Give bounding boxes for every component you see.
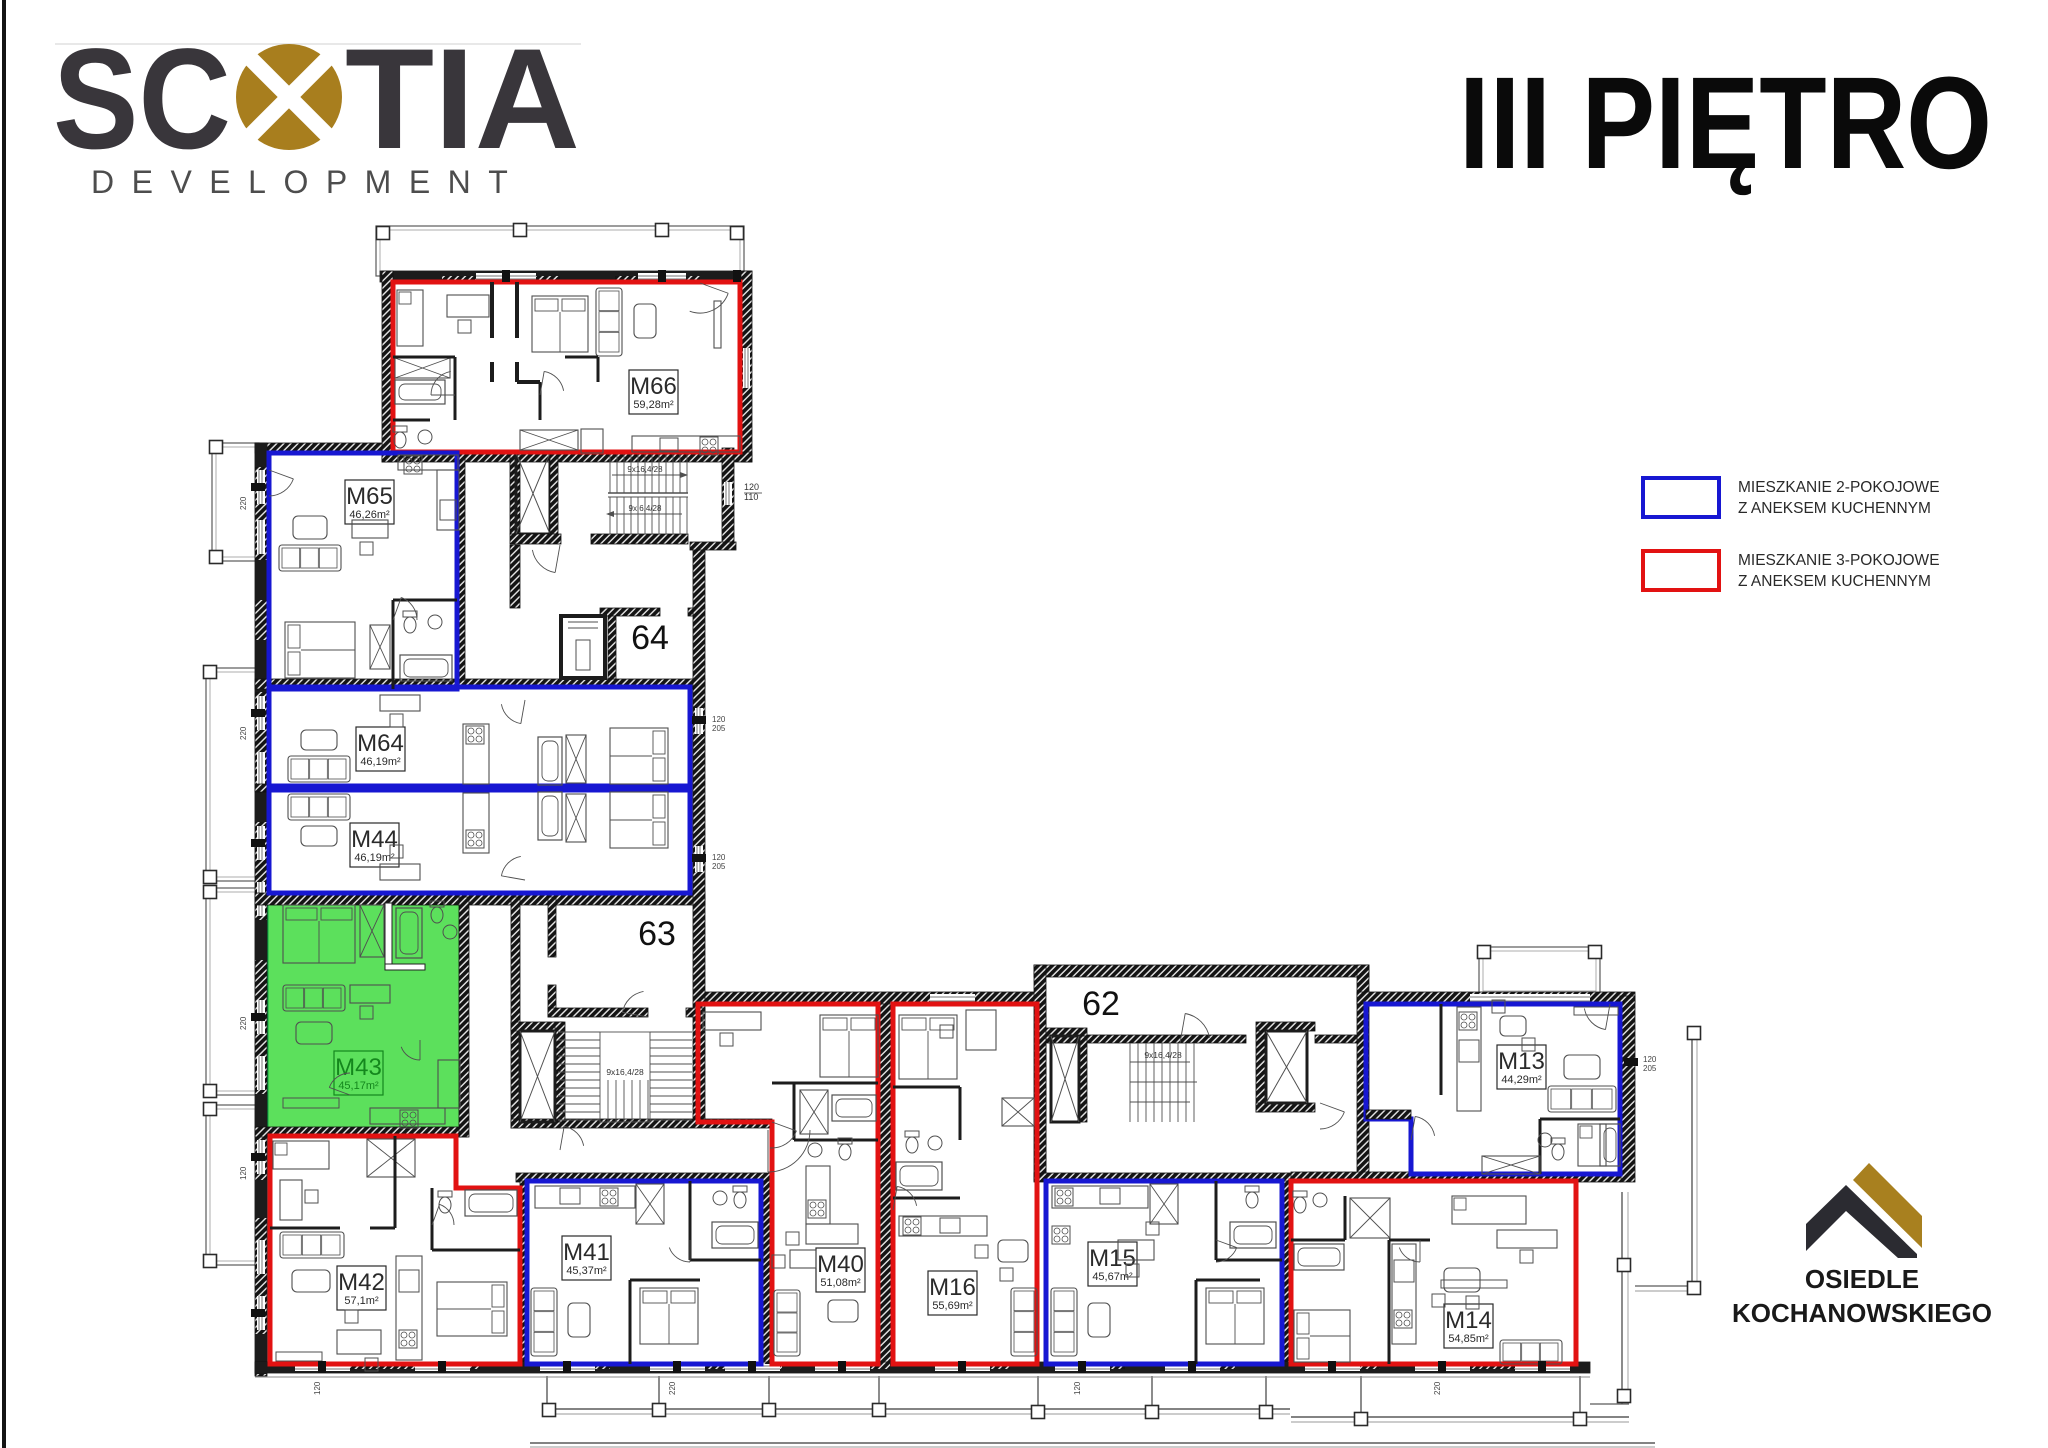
svg-text:62: 62 (1082, 985, 1120, 1023)
svg-text:M15: M15 (1089, 1245, 1136, 1272)
svg-text:M40: M40 (817, 1251, 864, 1278)
svg-text:M64: M64 (357, 730, 404, 757)
svg-text:220: 220 (1433, 1381, 1442, 1395)
svg-text:220: 220 (239, 726, 248, 740)
svg-text:M41: M41 (563, 1239, 610, 1266)
svg-text:DEVELOPMENT: DEVELOPMENT (91, 164, 525, 200)
svg-text:OSIEDLE: OSIEDLE (1805, 1264, 1919, 1294)
svg-text:46,19m²: 46,19m² (354, 852, 395, 864)
svg-text:45,17m²: 45,17m² (338, 1080, 379, 1092)
svg-text:205: 205 (712, 862, 726, 871)
svg-text:205: 205 (1643, 1064, 1657, 1073)
svg-text:120: 120 (239, 1166, 248, 1180)
svg-text:SC: SC (53, 20, 231, 179)
svg-text:110: 110 (744, 492, 758, 502)
svg-text:KOCHANOWSKIEGO: KOCHANOWSKIEGO (1732, 1298, 1992, 1328)
svg-text:III PIĘTRO: III PIĘTRO (1459, 49, 1992, 196)
svg-text:46,19m²: 46,19m² (360, 756, 401, 768)
svg-text:46,26m²: 46,26m² (349, 509, 390, 521)
svg-text:220: 220 (668, 1381, 677, 1395)
svg-text:M14: M14 (1445, 1307, 1492, 1334)
svg-text:55,69m²: 55,69m² (932, 1300, 973, 1312)
svg-text:M42: M42 (338, 1269, 385, 1296)
svg-text:M65: M65 (346, 483, 393, 510)
svg-text:120: 120 (313, 1381, 322, 1395)
svg-text:TIA: TIA (345, 20, 580, 179)
svg-text:9x16,4/28: 9x16,4/28 (627, 465, 663, 474)
svg-text:120: 120 (744, 482, 759, 492)
svg-text:9x16,4/28: 9x16,4/28 (606, 1067, 644, 1077)
svg-text:M43: M43 (335, 1054, 382, 1081)
svg-text:205: 205 (712, 724, 726, 733)
svg-text:120: 120 (712, 853, 726, 862)
svg-text:MIESZKANIE 2-POKOJOWE: MIESZKANIE 2-POKOJOWE (1738, 479, 1940, 496)
svg-text:63: 63 (638, 915, 676, 953)
svg-text:120: 120 (1073, 1381, 1082, 1395)
svg-text:44,29m²: 44,29m² (1501, 1074, 1542, 1086)
svg-text:51,08m²: 51,08m² (820, 1277, 861, 1289)
svg-text:57,1m²: 57,1m² (344, 1295, 379, 1307)
svg-text:120: 120 (1643, 1055, 1657, 1064)
svg-text:220: 220 (239, 1016, 248, 1030)
svg-text:M13: M13 (1498, 1048, 1545, 1075)
svg-text:9x 6,4/28: 9x 6,4/28 (629, 504, 662, 513)
svg-text:9x16,4/28: 9x16,4/28 (1144, 1050, 1182, 1060)
svg-text:45,37m²: 45,37m² (566, 1265, 607, 1277)
svg-text:Z ANEKSEM KUCHENNYM: Z ANEKSEM KUCHENNYM (1738, 573, 1931, 590)
svg-text:64: 64 (631, 619, 669, 657)
svg-text:M16: M16 (929, 1274, 976, 1301)
svg-text:54,85m²: 54,85m² (1448, 1333, 1489, 1345)
svg-text:120: 120 (712, 715, 726, 724)
svg-text:Z ANEKSEM KUCHENNYM: Z ANEKSEM KUCHENNYM (1738, 500, 1931, 517)
svg-text:MIESZKANIE 3-POKOJOWE: MIESZKANIE 3-POKOJOWE (1738, 552, 1940, 569)
svg-text:59,28m²: 59,28m² (633, 399, 674, 411)
svg-text:M66: M66 (630, 373, 677, 400)
svg-text:M44: M44 (351, 826, 398, 853)
svg-text:220: 220 (239, 496, 248, 510)
